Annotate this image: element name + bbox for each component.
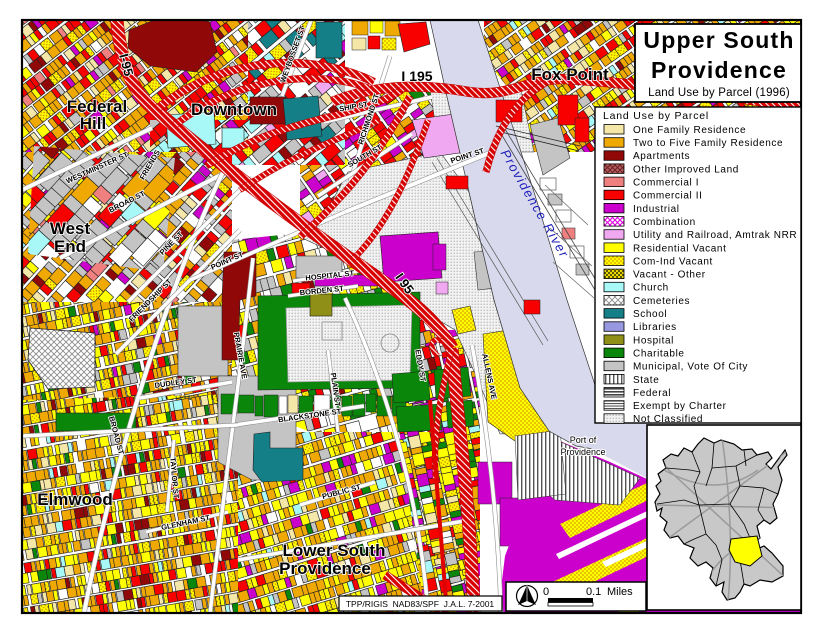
svg-text:Vacant - Other: Vacant - Other	[633, 270, 706, 281]
svg-text:Hospital: Hospital	[633, 335, 674, 346]
svg-text:Providence: Providence	[279, 559, 371, 578]
svg-text:Utility and Railroad, Amtrak N: Utility and Railroad, Amtrak NRR	[633, 230, 797, 241]
svg-text:Church: Church	[633, 283, 669, 294]
svg-text:Other Improved Land: Other Improved Land	[633, 164, 739, 175]
svg-text:Cemeteries: Cemeteries	[633, 296, 690, 307]
svg-text:Upper South: Upper South	[643, 27, 794, 53]
svg-text:Combination: Combination	[633, 217, 696, 228]
svg-text:Port of: Port of	[570, 435, 597, 445]
svg-text:Apartments: Apartments	[633, 151, 690, 162]
svg-text:Libraries: Libraries	[633, 322, 677, 333]
svg-text:Municipal, Vote Of City: Municipal, Vote Of City	[633, 362, 748, 373]
svg-text:Land Use by Parcel (1996): Land Use by Parcel (1996)	[648, 87, 790, 99]
svg-text:Hill: Hill	[80, 114, 106, 133]
svg-text:I 195: I 195	[401, 68, 432, 84]
svg-text:Lower South: Lower South	[283, 541, 386, 560]
svg-text:Downtown: Downtown	[191, 100, 277, 119]
svg-text:Land Use by Parcel: Land Use by Parcel	[603, 110, 709, 122]
svg-text:0.1: 0.1	[586, 586, 601, 598]
svg-text:West: West	[50, 219, 91, 238]
svg-text:Federal: Federal	[633, 388, 671, 399]
svg-text:Providence: Providence	[560, 447, 605, 457]
svg-text:Charitable: Charitable	[633, 348, 685, 359]
svg-text:Providence: Providence	[651, 57, 787, 83]
svg-text:State: State	[633, 375, 659, 386]
svg-text:Residential Vacant: Residential Vacant	[633, 243, 726, 254]
svg-text:Exempt by Charter: Exempt by Charter	[633, 401, 727, 412]
svg-text:Elmwood: Elmwood	[37, 490, 113, 509]
svg-text:Commercial I: Commercial I	[633, 178, 699, 189]
svg-text:0: 0	[543, 586, 549, 598]
svg-text:Not Classified: Not Classified	[633, 414, 703, 425]
svg-text:Industrial: Industrial	[633, 204, 680, 215]
svg-text:End: End	[54, 237, 86, 256]
svg-text:Two to Five Family Residence: Two to Five Family Residence	[633, 138, 783, 149]
svg-text:School: School	[633, 309, 667, 320]
svg-text:One Family Residence: One Family Residence	[633, 125, 746, 136]
svg-text:TPP/RIGIS NAD83/SPF J.A.L. 7: TPP/RIGIS NAD83/SPF J.A.L. 7-2001	[346, 599, 495, 609]
svg-text:Com-Ind Vacant: Com-Ind Vacant	[633, 256, 713, 267]
svg-text:Commercial II: Commercial II	[633, 191, 702, 202]
svg-text:Fox Point: Fox Point	[531, 65, 609, 84]
svg-text:Miles: Miles	[607, 586, 633, 598]
